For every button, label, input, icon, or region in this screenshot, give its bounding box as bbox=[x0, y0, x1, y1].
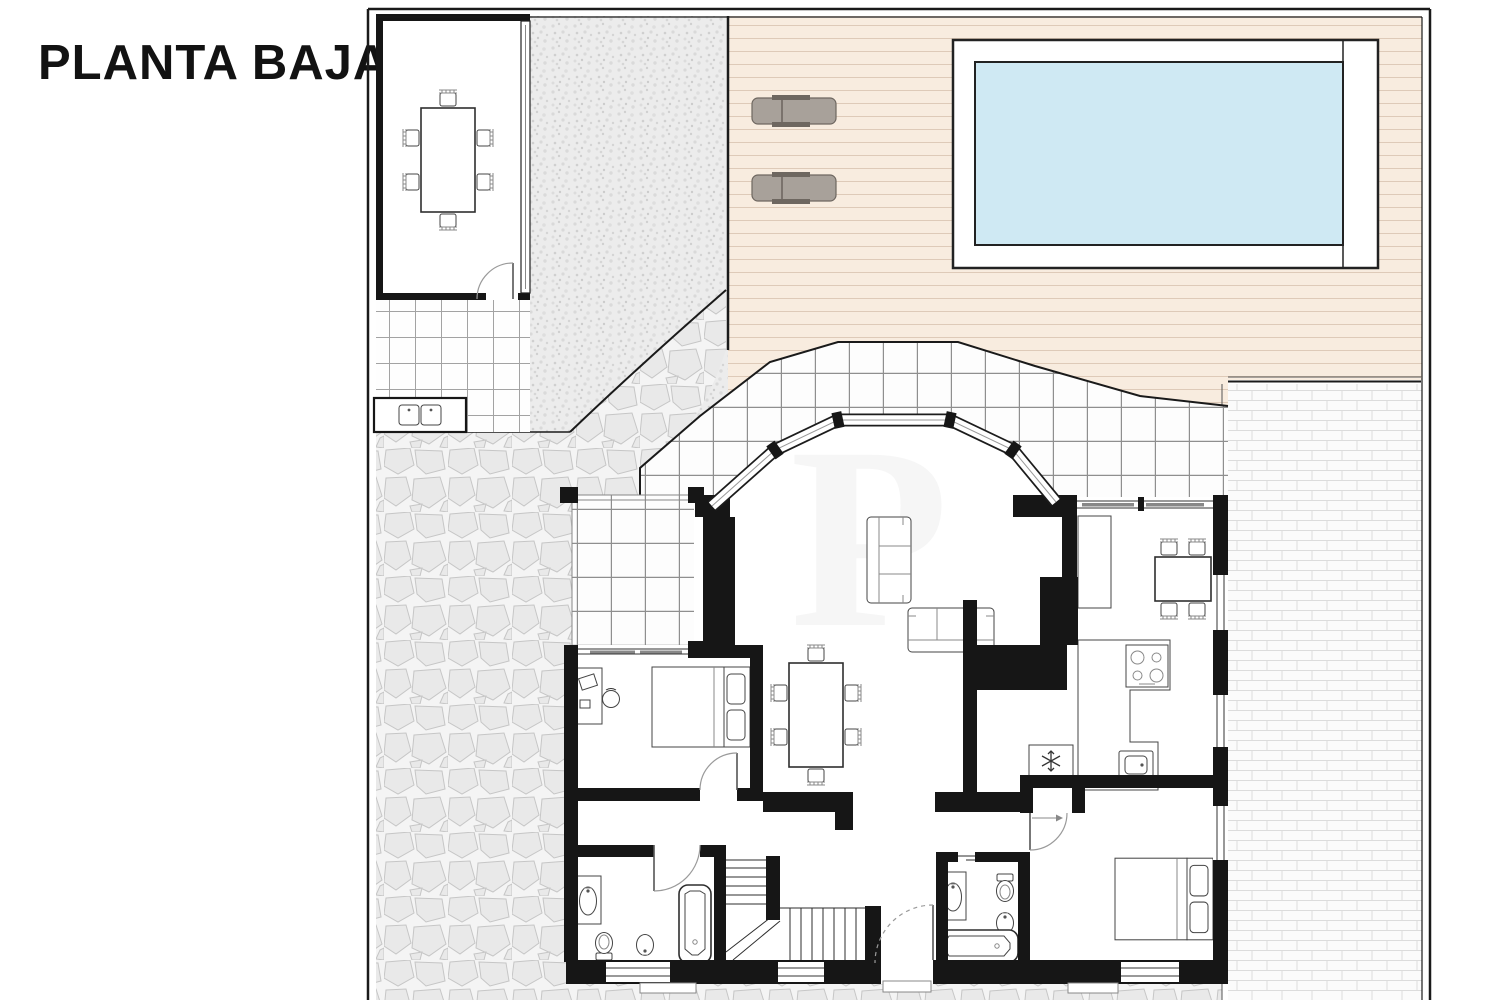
brick-patio bbox=[1228, 384, 1422, 1000]
floor-plan-page: PLANTA BAJA bbox=[0, 0, 1500, 1000]
floor-plan-drawing: P bbox=[0, 0, 1500, 1000]
bed-1 bbox=[652, 667, 750, 747]
bath1-bathtub bbox=[679, 885, 711, 963]
bath1-bidet bbox=[637, 935, 654, 956]
desk-chair bbox=[603, 691, 620, 708]
sofa-vertical bbox=[867, 517, 911, 603]
kitchen-cabinet bbox=[1078, 516, 1111, 608]
east-windows bbox=[1213, 575, 1228, 860]
stove bbox=[1126, 645, 1168, 687]
kitchen-window bbox=[1077, 497, 1213, 511]
sun-lounger-2 bbox=[752, 172, 836, 204]
entrance-gap bbox=[881, 960, 933, 984]
kitchen-sink bbox=[1119, 751, 1153, 779]
sun-lounger-1 bbox=[752, 95, 836, 127]
bedroom-2 bbox=[1115, 858, 1213, 940]
outdoor-sink-counter bbox=[374, 398, 466, 432]
pool-water bbox=[975, 62, 1343, 245]
swimming-pool bbox=[953, 40, 1378, 268]
bath2-toilet bbox=[997, 874, 1014, 902]
bed-2 bbox=[1115, 858, 1213, 940]
bath1-sink bbox=[575, 876, 601, 924]
bath1-toilet bbox=[596, 933, 613, 961]
glazed-wall bbox=[521, 21, 530, 293]
fridge bbox=[1029, 745, 1073, 777]
bedroom1-window bbox=[578, 645, 688, 658]
terrace-tiles bbox=[572, 495, 694, 645]
bath2-bathtub bbox=[940, 930, 1018, 962]
